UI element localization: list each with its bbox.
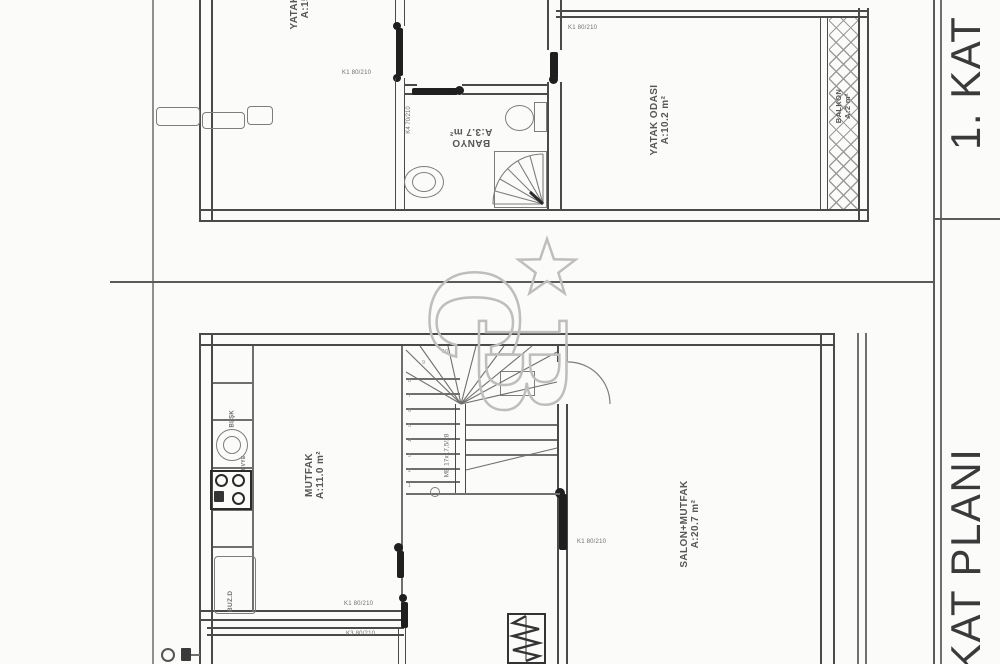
terrace-edge-line bbox=[865, 333, 867, 664]
room-label-balkon: BALKON A:2 m² bbox=[830, 61, 856, 151]
step-number: 8 bbox=[408, 378, 411, 384]
room-label-yatak1: YATAK ODASI A:15.3 m² bbox=[287, 0, 313, 54]
stair-tread bbox=[406, 393, 460, 395]
wall-fixture-rect bbox=[202, 112, 245, 129]
room-name: MUTFAK bbox=[304, 453, 316, 497]
watermark-letter-b: B bbox=[450, 315, 591, 416]
title-floor1: 1. KAT PLANI bbox=[942, 0, 990, 150]
stair-tread bbox=[406, 423, 460, 425]
door-leaf bbox=[559, 494, 567, 550]
stair-landing bbox=[500, 371, 535, 396]
title-strip-line-left bbox=[933, 0, 935, 664]
step-number: 4 bbox=[408, 438, 411, 444]
wall bbox=[462, 84, 548, 95]
plan-divider-line bbox=[110, 281, 933, 283]
wall bbox=[395, 78, 405, 209]
burner-icon bbox=[232, 492, 245, 505]
wall bbox=[547, 0, 562, 50]
radiator-icon bbox=[507, 613, 546, 664]
stair-note: MB 17x17,5/28 bbox=[444, 416, 451, 496]
room-name: BANYO bbox=[452, 137, 490, 149]
fridge-icon bbox=[214, 556, 256, 614]
room-label-alt-banyo: BANYO m² bbox=[290, 642, 316, 664]
stair-tread bbox=[406, 378, 460, 380]
step-number: 10 bbox=[442, 349, 448, 355]
burner-icon bbox=[232, 474, 245, 487]
step-number: 7 bbox=[408, 393, 411, 399]
wall-fixture-rect bbox=[156, 107, 200, 126]
door-leaf bbox=[412, 88, 458, 95]
room-name: YATAK ODASI bbox=[289, 0, 301, 29]
room-name: SALON+MUTFAK bbox=[679, 480, 691, 567]
door-leaf bbox=[397, 551, 404, 578]
door-label: K1 80/210 bbox=[344, 601, 373, 607]
room-area: A:20.7 m² bbox=[690, 500, 702, 549]
room-area: A:10.2 m² bbox=[660, 96, 672, 145]
step-number: 2 bbox=[408, 468, 411, 474]
wall bbox=[820, 16, 828, 210]
wall bbox=[858, 8, 869, 222]
room-area: A:15.3 m² bbox=[300, 0, 312, 18]
wall bbox=[199, 209, 868, 222]
stair-tread bbox=[466, 454, 557, 456]
stair-edge bbox=[406, 493, 560, 495]
shower-tray-icon bbox=[494, 151, 547, 208]
stair-rail bbox=[455, 404, 466, 493]
wall-fixture-rect bbox=[247, 106, 273, 125]
left-boundary-line bbox=[152, 0, 154, 664]
burner-icon bbox=[215, 474, 228, 487]
valve-icon bbox=[181, 648, 191, 661]
step-number: 9 bbox=[422, 360, 425, 366]
room-label-mutfak: MUTFAK A:11.0 m² bbox=[302, 415, 328, 535]
meter-connector-line bbox=[191, 654, 200, 656]
room-area: A:11.0 m² bbox=[315, 451, 327, 499]
step-number: 3 bbox=[408, 453, 411, 459]
stair-tread bbox=[466, 424, 557, 426]
wall bbox=[557, 346, 568, 362]
door-label: K3 80/210 bbox=[346, 631, 375, 637]
floorplan-scan: 1. KAT PLANI KAT PLANI YATAK ODASI A:15.… bbox=[0, 0, 1000, 664]
wall bbox=[199, 0, 213, 222]
room-area: A:2 m² bbox=[843, 93, 852, 119]
door-label: K1 80/210 bbox=[577, 539, 606, 545]
room-name: YATAK ODASI bbox=[649, 85, 661, 156]
door-label: K1 80/210 bbox=[342, 70, 371, 76]
room-area: A:3.7 m² bbox=[450, 126, 493, 138]
room-name: BALKON bbox=[834, 89, 843, 123]
stair-newel bbox=[430, 487, 440, 497]
step-number: 6 bbox=[408, 408, 411, 414]
terrace-edge-line bbox=[857, 333, 859, 664]
room-label-salon: SALON+MUTFAK A:20.7 m² bbox=[677, 454, 703, 594]
meter-icon bbox=[161, 648, 175, 662]
step-number: 1 bbox=[408, 483, 411, 489]
stair-tread bbox=[406, 481, 460, 483]
door-label: K4 70/210 bbox=[406, 90, 412, 150]
stair-tread bbox=[406, 408, 460, 410]
star-icon bbox=[519, 239, 576, 293]
burner-icon bbox=[214, 491, 224, 502]
dishwasher-label: BLŞK bbox=[230, 373, 236, 428]
wall bbox=[820, 333, 835, 664]
title-floor2: KAT PLANI bbox=[942, 412, 990, 664]
door-swing-arc bbox=[568, 362, 610, 404]
stair-tread bbox=[406, 468, 460, 470]
door-label: K1 80/210 bbox=[568, 25, 597, 31]
wall bbox=[398, 627, 406, 664]
room-label-yatak2: YATAK ODASI A:10.2 m² bbox=[647, 60, 673, 180]
title-strip-divider bbox=[933, 218, 1000, 220]
stair-tread bbox=[406, 453, 460, 455]
watermark-logo: C B bbox=[402, 239, 591, 417]
hinge-dot bbox=[393, 22, 401, 30]
hinge-dot bbox=[399, 594, 407, 602]
sink-basin-icon bbox=[412, 172, 436, 192]
sink-label: EVYE bbox=[241, 420, 247, 470]
door-leaf bbox=[401, 602, 408, 628]
stair-tread bbox=[406, 438, 460, 440]
door-leaf bbox=[396, 28, 403, 76]
wall bbox=[199, 333, 835, 346]
fridge-label: BUZ.D bbox=[227, 557, 234, 612]
room-label-banyo: BANYO A:3.7 m² bbox=[411, 124, 531, 150]
toilet-tank-icon bbox=[534, 102, 547, 132]
stair-tread bbox=[466, 439, 557, 441]
wall bbox=[547, 82, 562, 209]
step-number: 5 bbox=[408, 423, 411, 429]
counter-divider bbox=[213, 546, 252, 548]
kitchen-sink-icon bbox=[223, 436, 241, 454]
